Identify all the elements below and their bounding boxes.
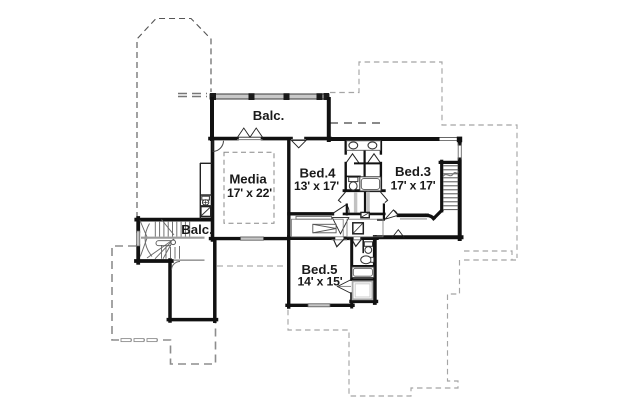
svg-text:Bed.3: Bed.3 xyxy=(395,164,431,179)
svg-text:Balc.: Balc. xyxy=(181,222,213,237)
svg-text:14' x 15': 14' x 15' xyxy=(297,275,342,289)
svg-text:Balc.: Balc. xyxy=(253,108,285,123)
svg-text:17' x 22': 17' x 22' xyxy=(227,186,272,200)
svg-text:17' x 17': 17' x 17' xyxy=(390,179,435,193)
svg-text:13' x 17': 13' x 17' xyxy=(294,179,339,193)
svg-text:Media: Media xyxy=(229,172,267,187)
